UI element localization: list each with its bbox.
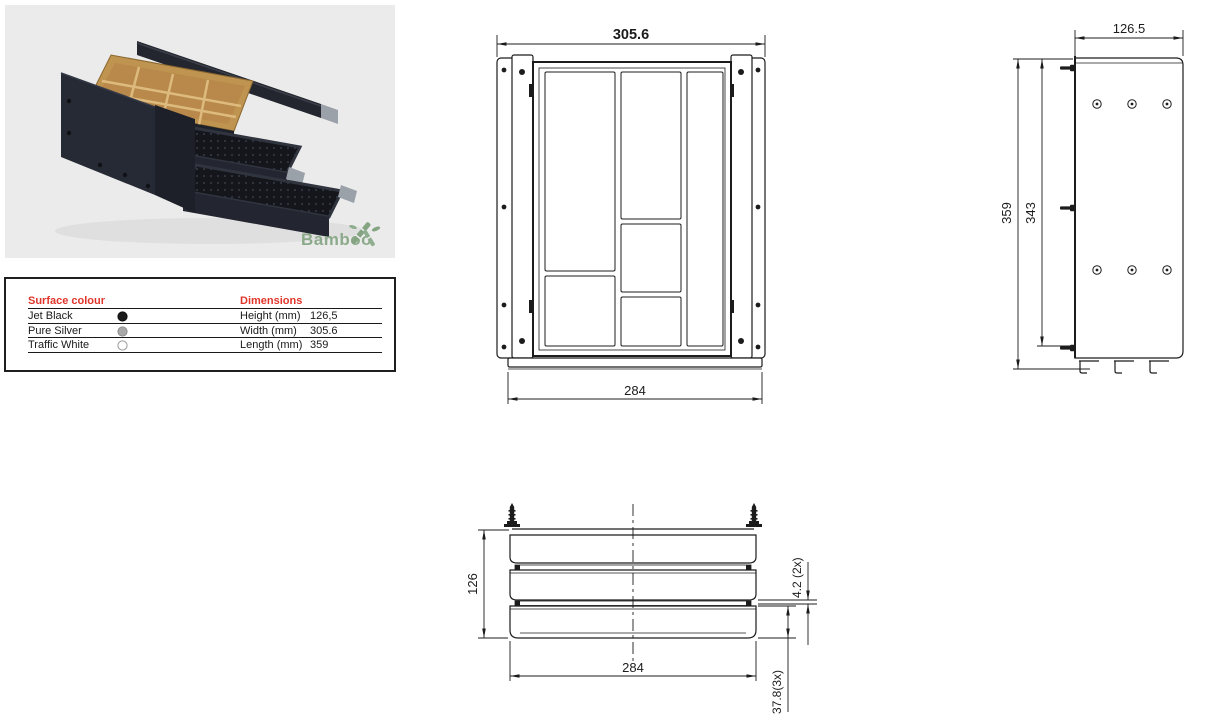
product-photo-panel: Bamboo xyxy=(5,5,395,258)
slide-rail-right xyxy=(729,55,752,358)
cabinet-body xyxy=(155,105,195,213)
dimension-depth: 126.5 xyxy=(1075,21,1183,56)
dim-text-front-width: 284 xyxy=(624,383,646,398)
bottom-hooks xyxy=(1079,361,1169,373)
edge-screw xyxy=(1060,65,1076,71)
colour-swatch-traffic-white xyxy=(116,339,129,356)
dimension-overall-width: 305.6 xyxy=(497,27,765,57)
dimension-label: Length (mm) xyxy=(240,339,302,352)
spec-header-row: Surface colour Dimensions xyxy=(28,294,382,309)
slide-rail-left xyxy=(512,55,534,358)
dimension-value: 359 xyxy=(310,339,328,352)
edge-screws xyxy=(1060,65,1076,351)
drawer-front-bar xyxy=(508,358,762,369)
table-row: Jet Black Height (mm) 126,5 xyxy=(28,309,382,324)
edge-screw xyxy=(1060,205,1076,211)
dim-text-slot-gap: 4.2 (2x) xyxy=(790,557,804,598)
mounting-screw xyxy=(504,503,520,527)
datasheet-page: Bamboo Su xyxy=(0,0,1228,720)
bottom-drawer-rail-cap xyxy=(338,185,357,203)
spec-table: Surface colour Dimensions Jet Black Heig… xyxy=(4,277,396,372)
dimension-label: Width (mm) xyxy=(240,325,297,338)
dim-text-depth: 126.5 xyxy=(1113,21,1146,36)
surface-colour-header: Surface colour xyxy=(28,295,105,308)
colour-name: Jet Black xyxy=(28,310,73,323)
product-photo-illustration: Bamboo xyxy=(5,5,395,258)
dim-text-front-height: 37.8(3x) xyxy=(770,670,784,714)
dimension-front-width: 284 xyxy=(508,372,762,404)
dimension-value: 126,5 xyxy=(310,310,338,323)
dim-text-width: 284 xyxy=(622,660,644,675)
tray-outline xyxy=(533,62,731,356)
dim-text-length-outer: 359 xyxy=(999,202,1014,224)
colour-name: Pure Silver xyxy=(28,325,82,338)
top-view-drawing: 305.6 xyxy=(460,15,800,410)
dimensions-header: Dimensions xyxy=(240,295,302,308)
dim-text-overall-width: 305.6 xyxy=(613,27,649,43)
dimension-height: 126 xyxy=(465,530,509,638)
table-row: Traffic White Length (mm) 359 xyxy=(28,338,382,353)
colour-name: Traffic White xyxy=(28,339,89,352)
mounting-screw xyxy=(746,503,762,527)
dimension-front-height: 37.8(3x) xyxy=(758,606,796,714)
table-row: Pure Silver Width (mm) 305.6 xyxy=(28,324,382,339)
front-view-drawing: 126 284 4.2 (2x) 37.8(3x) xyxy=(450,495,830,720)
dim-text-height: 126 xyxy=(465,573,480,595)
dimension-label: Height (mm) xyxy=(240,310,301,323)
drawer-stack xyxy=(510,504,756,662)
dimension-length-inner: 343 xyxy=(1023,59,1072,346)
dimension-value: 305.6 xyxy=(310,325,338,338)
side-view-drawing: 126.5 xyxy=(995,18,1210,383)
dim-text-length-inner: 343 xyxy=(1023,202,1038,224)
dimension-slot-gap: 4.2 (2x) xyxy=(758,557,817,645)
